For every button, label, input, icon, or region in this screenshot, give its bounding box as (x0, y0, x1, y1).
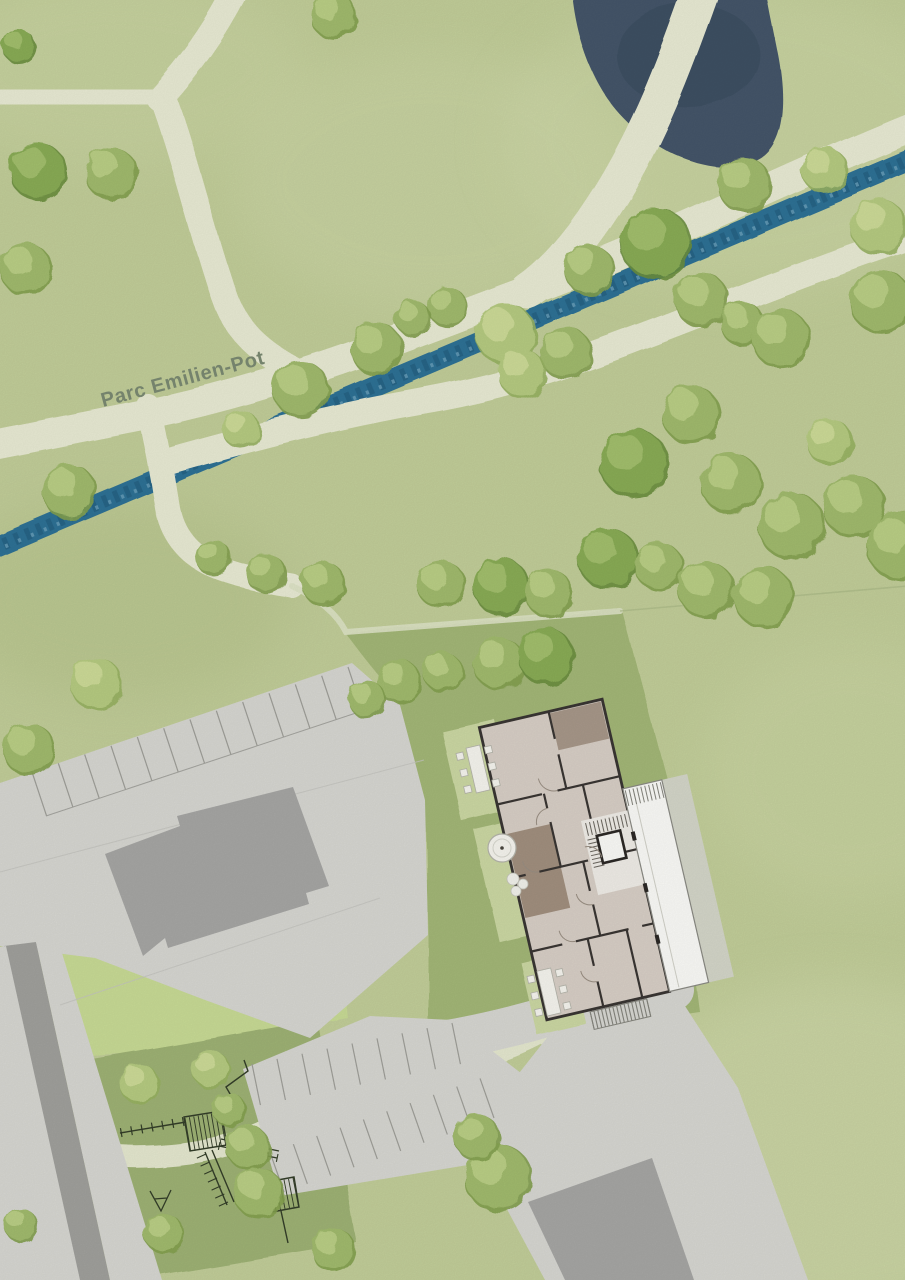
paper-texture (0, 0, 905, 1280)
site-plan: Parc Emilien-Pot (0, 0, 905, 1280)
site-plan-svg: Parc Emilien-Pot (0, 0, 905, 1280)
